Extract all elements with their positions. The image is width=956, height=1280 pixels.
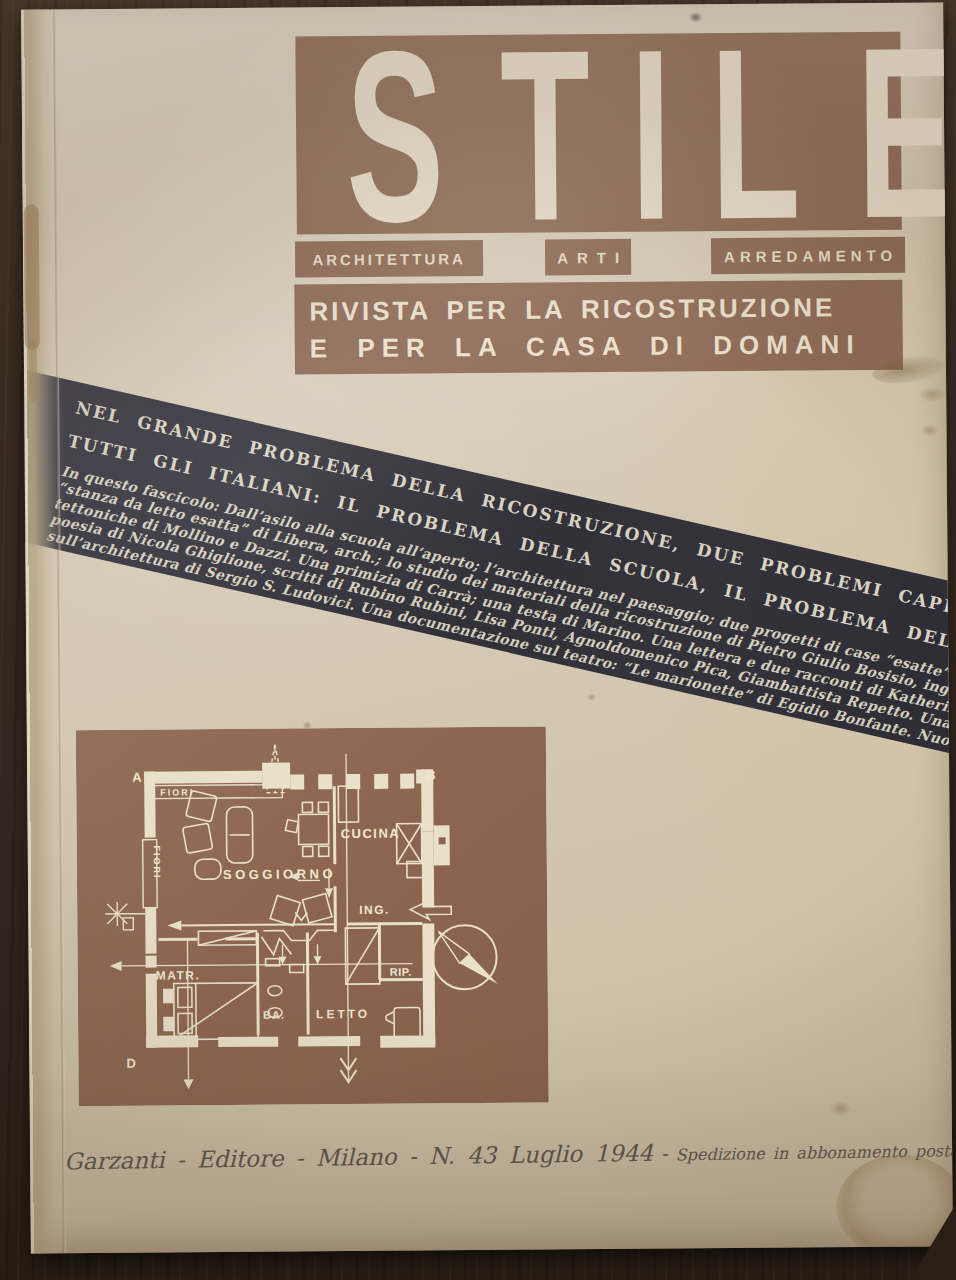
masthead-letter: I (629, 46, 671, 221)
imprint-line: Garzanti - Editore - Milano - N. 43 Lugl… (64, 1135, 953, 1174)
imprint-publisher: Garzanti - Editore - Milano - N. 43 Lugl… (64, 1140, 653, 1175)
category-row: ARCHITETTURA ARTI ARREDAMENTO (23, 236, 945, 279)
plan-corner-d-label: D (126, 1056, 136, 1071)
torn-paper-fragment (24, 205, 40, 350)
torn-paper-fragment (29, 340, 37, 402)
plan-master-label: MATR. (156, 968, 201, 982)
diagonal-banner: NEL GRANDE PROBLEMA DELLA RICOSTRUZIONE,… (21, 362, 953, 775)
photo-of-magazine-on-wood-table: S T I L E ARCHITETTURA ARTI ARREDAMENTO … (0, 0, 956, 1280)
plan-corner-b-label: B (426, 767, 436, 782)
category-arti: ARTI (545, 239, 631, 276)
paper-stain (920, 424, 938, 436)
paper-spot (689, 12, 702, 22)
masthead-letter: E (857, 44, 953, 220)
masthead-title-block: S T I L E (295, 32, 902, 235)
plan-corner-a-label: A (132, 770, 142, 785)
plan-planter-top-label: FIORI (160, 787, 194, 797)
category-architettura: ARCHITETTURA (295, 240, 483, 277)
imprint-postal: Spedizione in abbonamento postale - Grup… (676, 1138, 953, 1164)
category-arredamento: ARREDAMENTO (711, 237, 905, 275)
masthead-letter: S (345, 48, 444, 224)
plan-entry-label: ING. (359, 903, 390, 917)
imprint-dash: - (653, 1141, 676, 1165)
plan-living-label: SOGGIORNO (223, 866, 336, 882)
masthead-letter: T (500, 47, 591, 223)
plan-planter-side-label: FIORI (152, 846, 162, 880)
paper-stain (917, 386, 947, 402)
plan-bed-label: LETTO (316, 1007, 370, 1021)
plan-bay-window-inset (439, 837, 446, 844)
plan-kitchen-label: CUCINA (341, 826, 401, 841)
plan-storage-label: RIP. (390, 966, 412, 978)
paper-stain (830, 1101, 852, 1116)
magazine-cover-page: S T I L E ARCHITETTURA ARTI ARREDAMENTO … (21, 2, 953, 1253)
paper-spot (587, 693, 597, 701)
subtitle-line-1: RIVISTA PER LA RICOSTRUZIONE (309, 289, 902, 331)
subtitle-box: RIVISTA PER LA RICOSTRUZIONE E PER LA CA… (294, 280, 903, 375)
plan-bath-label: BA. (263, 1009, 285, 1021)
subtitle-line-2: E PER LA CASA DI DOMANI (310, 326, 903, 368)
floor-plan-panel: A B D FIORI FIORI SOGGIORNO CUCINA ING. … (76, 727, 549, 1107)
masthead-letter: L (710, 45, 801, 221)
